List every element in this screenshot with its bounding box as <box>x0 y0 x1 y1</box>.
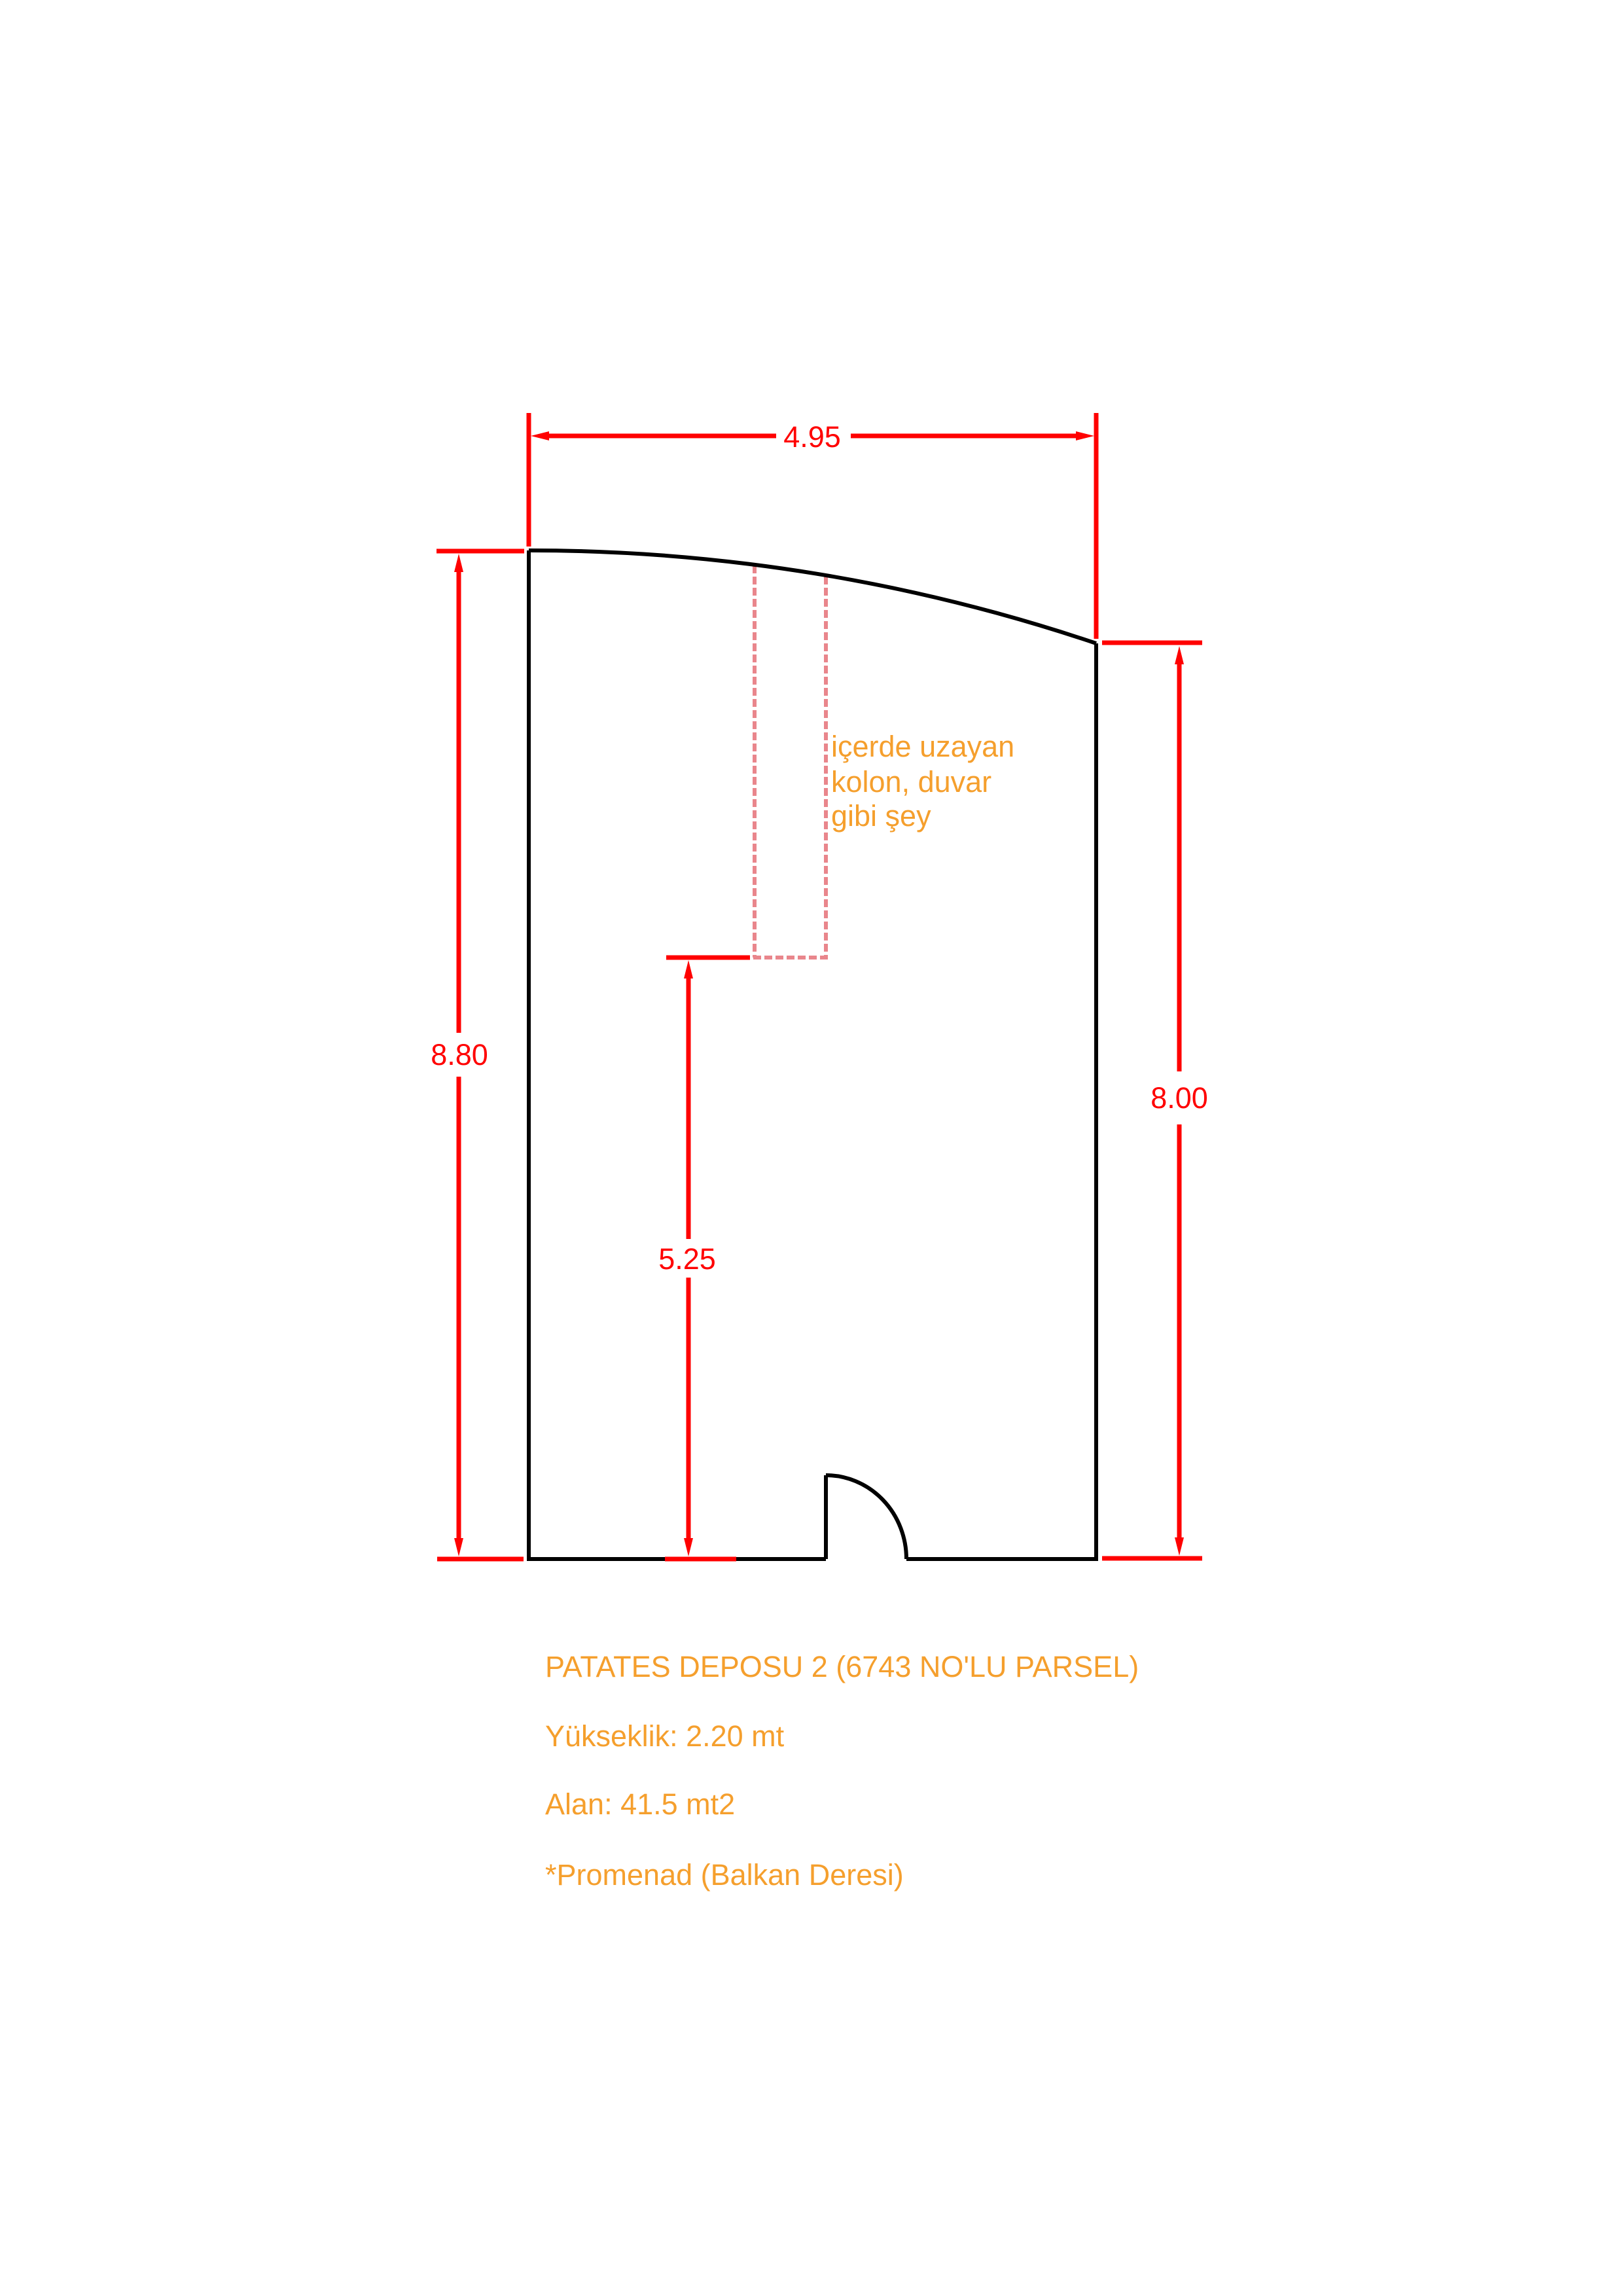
svg-text:Yükseklik: 2.20 mt: Yükseklik: 2.20 mt <box>545 1719 785 1753</box>
svg-text:*Promenad (Balkan Deresi): *Promenad (Balkan Deresi) <box>545 1858 904 1892</box>
svg-text:kolon, duvar: kolon, duvar <box>831 765 991 798</box>
svg-text:8.80: 8.80 <box>431 1038 488 1071</box>
svg-text:4.95: 4.95 <box>783 420 841 454</box>
svg-text:gibi şey: gibi şey <box>831 799 931 833</box>
svg-text:içerde uzayan: içerde uzayan <box>831 730 1014 763</box>
svg-text:8.00: 8.00 <box>1150 1081 1208 1115</box>
svg-text:PATATES DEPOSU 2 (6743 NO'LU P: PATATES DEPOSU 2 (6743 NO'LU PARSEL) <box>545 1650 1139 1683</box>
svg-text:5.25: 5.25 <box>658 1242 716 1276</box>
svg-text:Alan: 41.5 mt2: Alan: 41.5 mt2 <box>545 1787 735 1821</box>
